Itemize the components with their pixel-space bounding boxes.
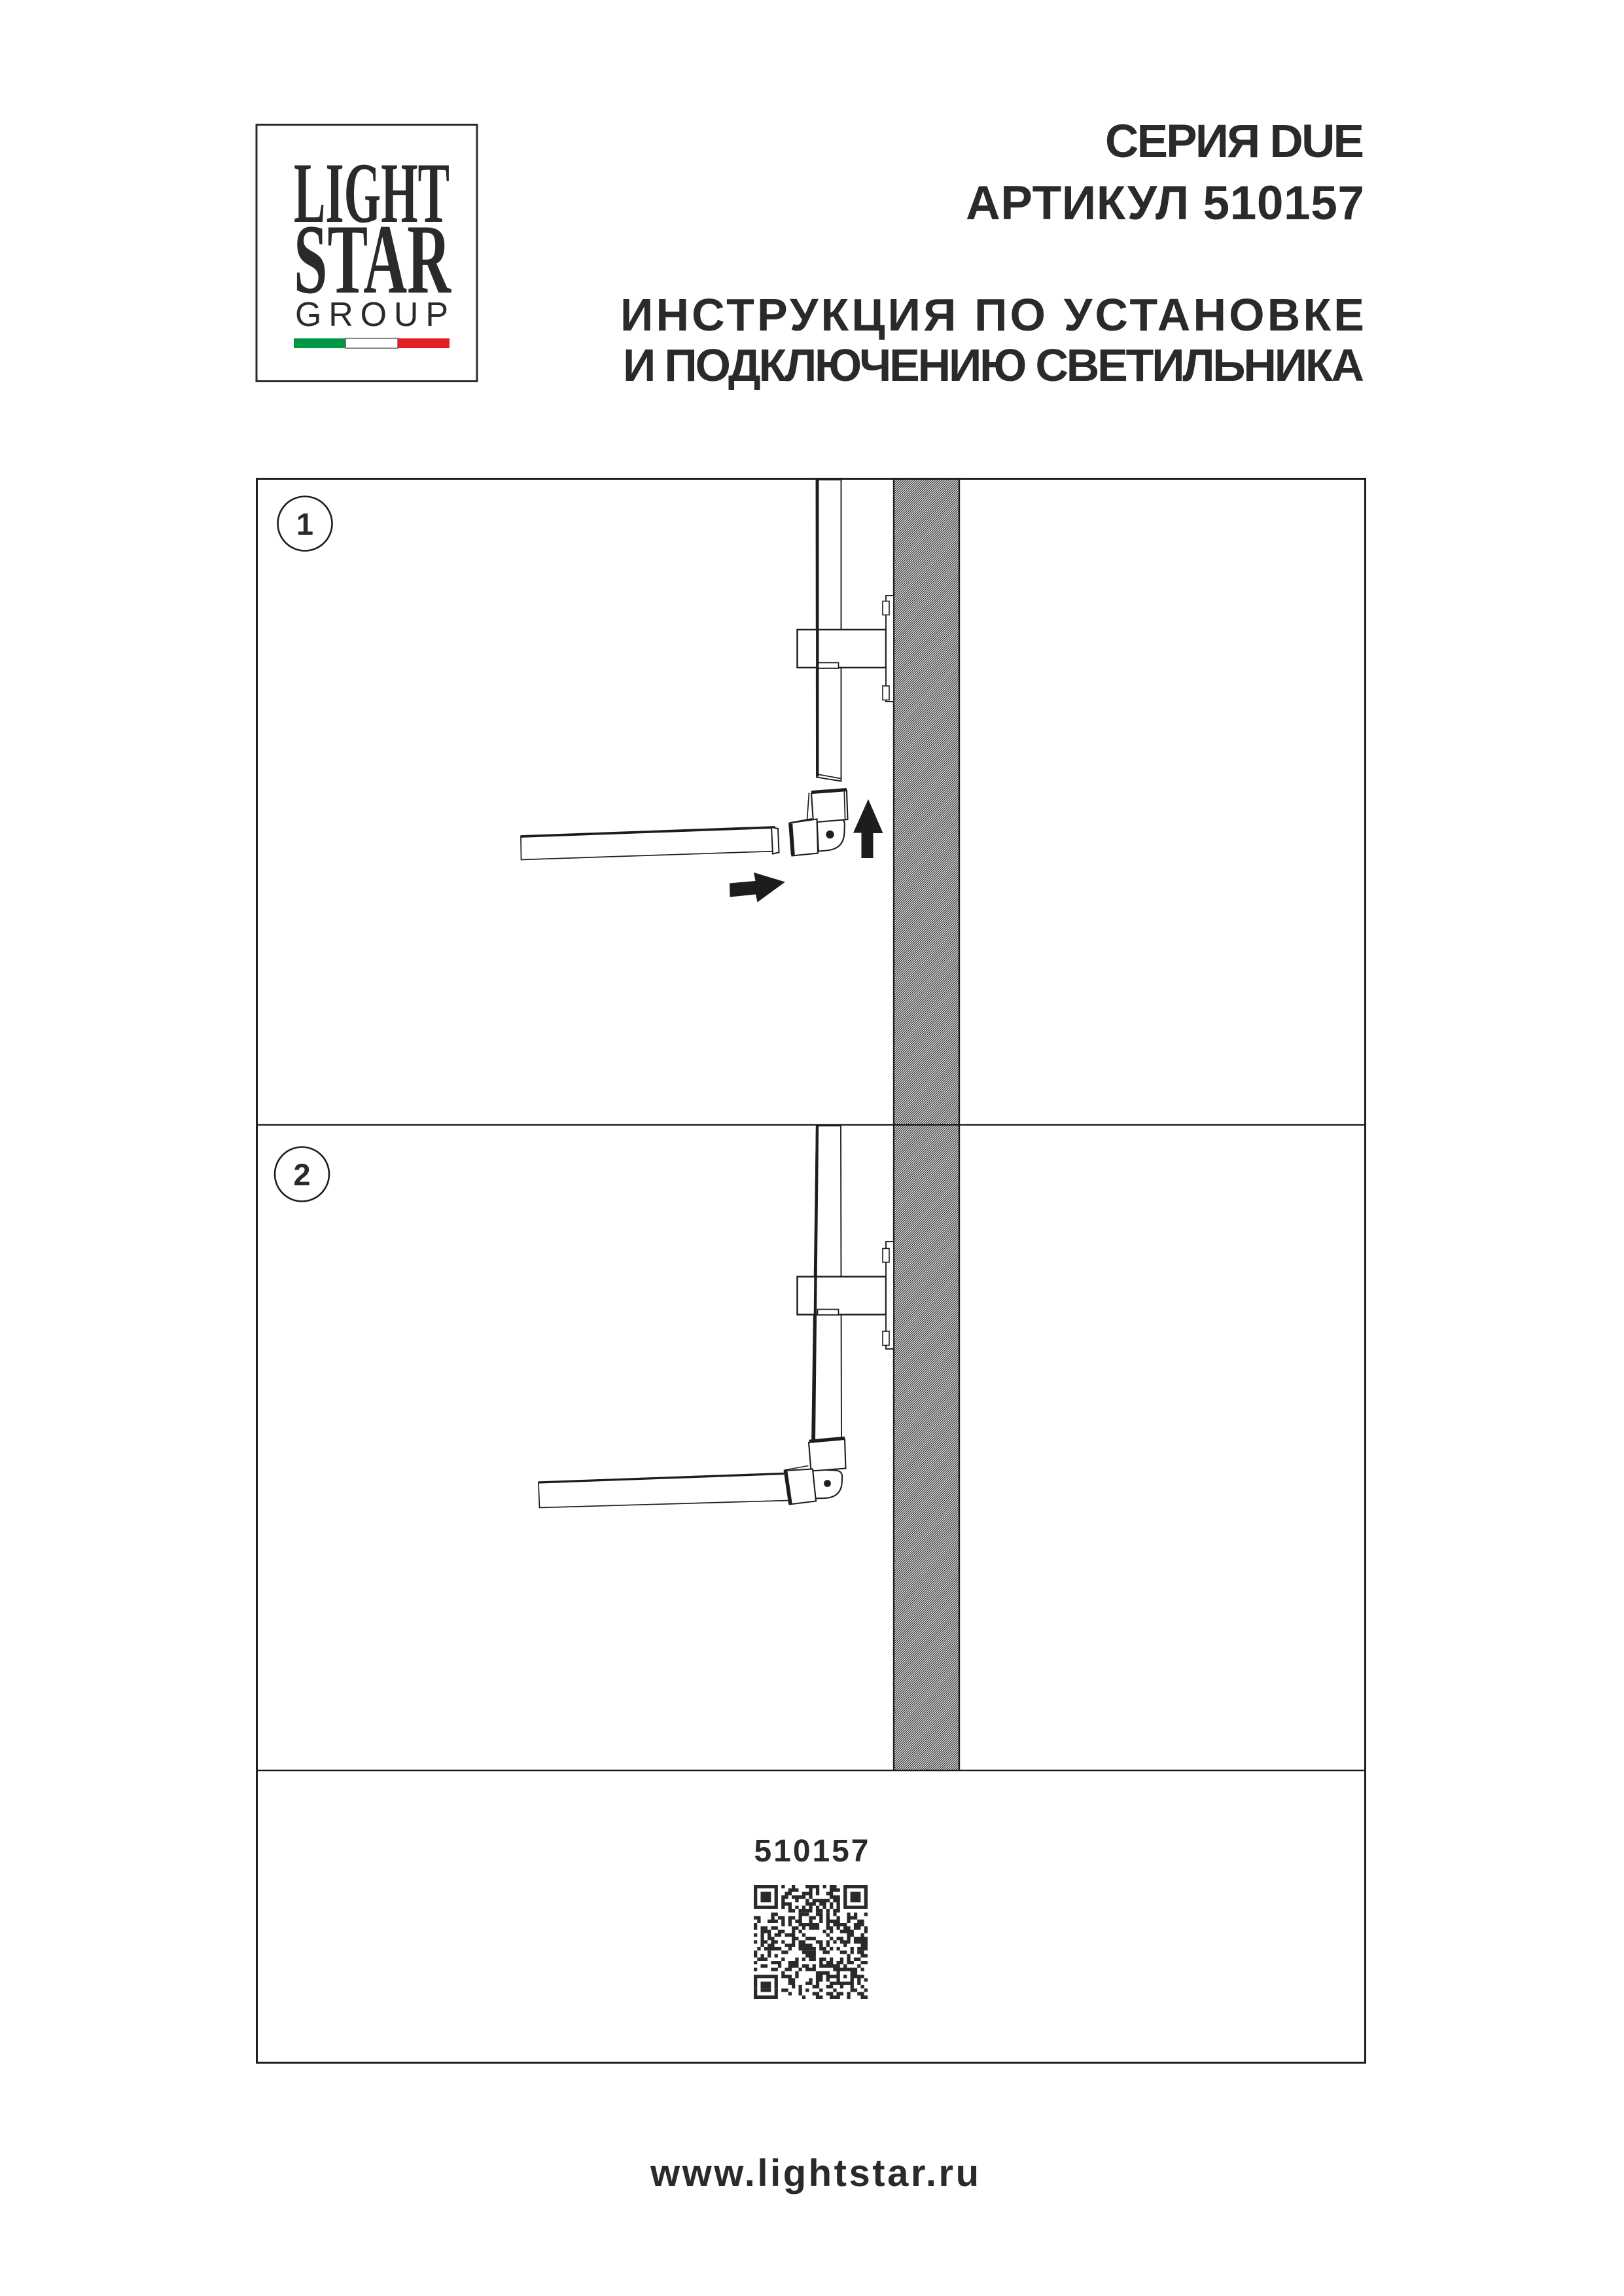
svg-text:www.lightstar.ru: www.lightstar.ru — [650, 2152, 979, 2195]
svg-text:GROUP: GROUP — [295, 296, 448, 334]
svg-text:АРТИКУЛ 510157: АРТИКУЛ 510157 — [966, 177, 1364, 230]
svg-text:ИНСТРУКЦИЯ ПО УСТАНОВКЕ: ИНСТРУКЦИЯ ПО УСТАНОВКЕ — [620, 289, 1364, 340]
svg-text:СЕРИЯ DUE: СЕРИЯ DUE — [1105, 116, 1364, 168]
svg-text:1: 1 — [296, 507, 313, 541]
svg-text:И ПОДКЛЮЧЕНИЮ СВЕТИЛЬНИКА: И ПОДКЛЮЧЕНИЮ СВЕТИЛЬНИКА — [623, 340, 1364, 391]
svg-text:2: 2 — [293, 1157, 310, 1192]
